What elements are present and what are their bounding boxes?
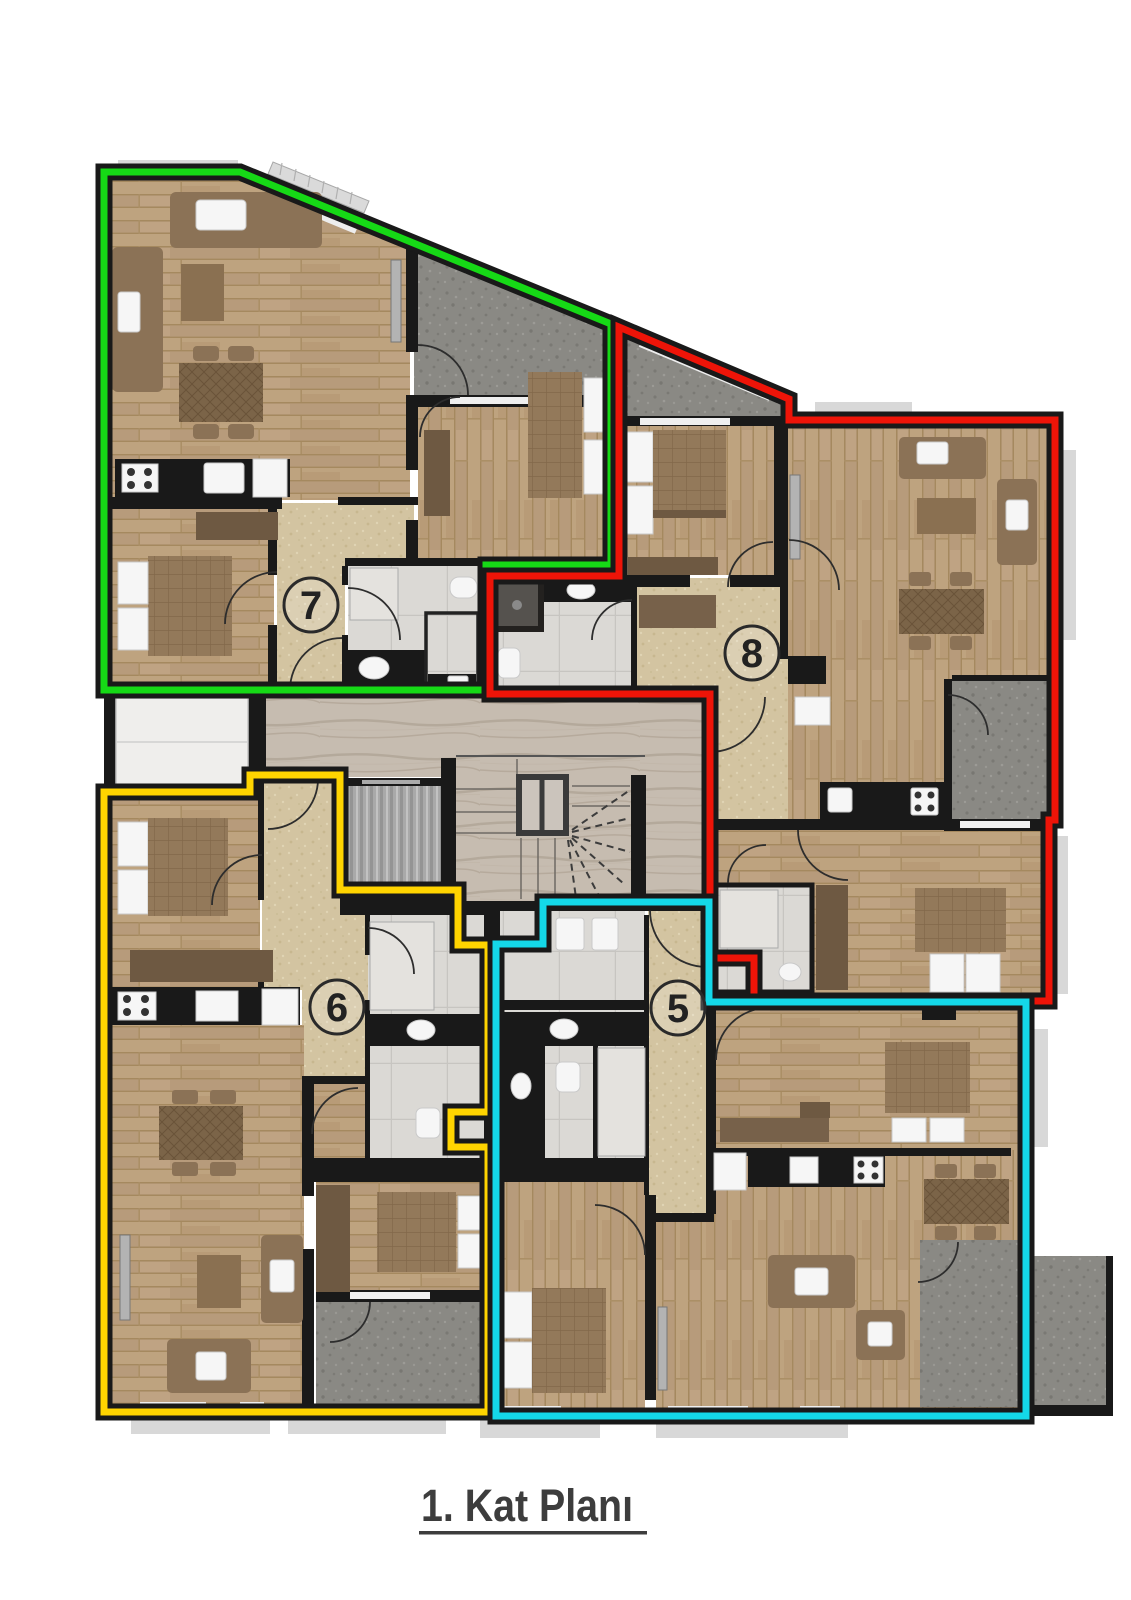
svg-text:1. Kat Planı: 1. Kat Planı	[421, 1480, 633, 1531]
svg-text:8: 8	[741, 632, 763, 676]
svg-text:7: 7	[300, 584, 322, 628]
svg-text:6: 6	[326, 986, 348, 1030]
svg-text:5: 5	[667, 987, 689, 1031]
